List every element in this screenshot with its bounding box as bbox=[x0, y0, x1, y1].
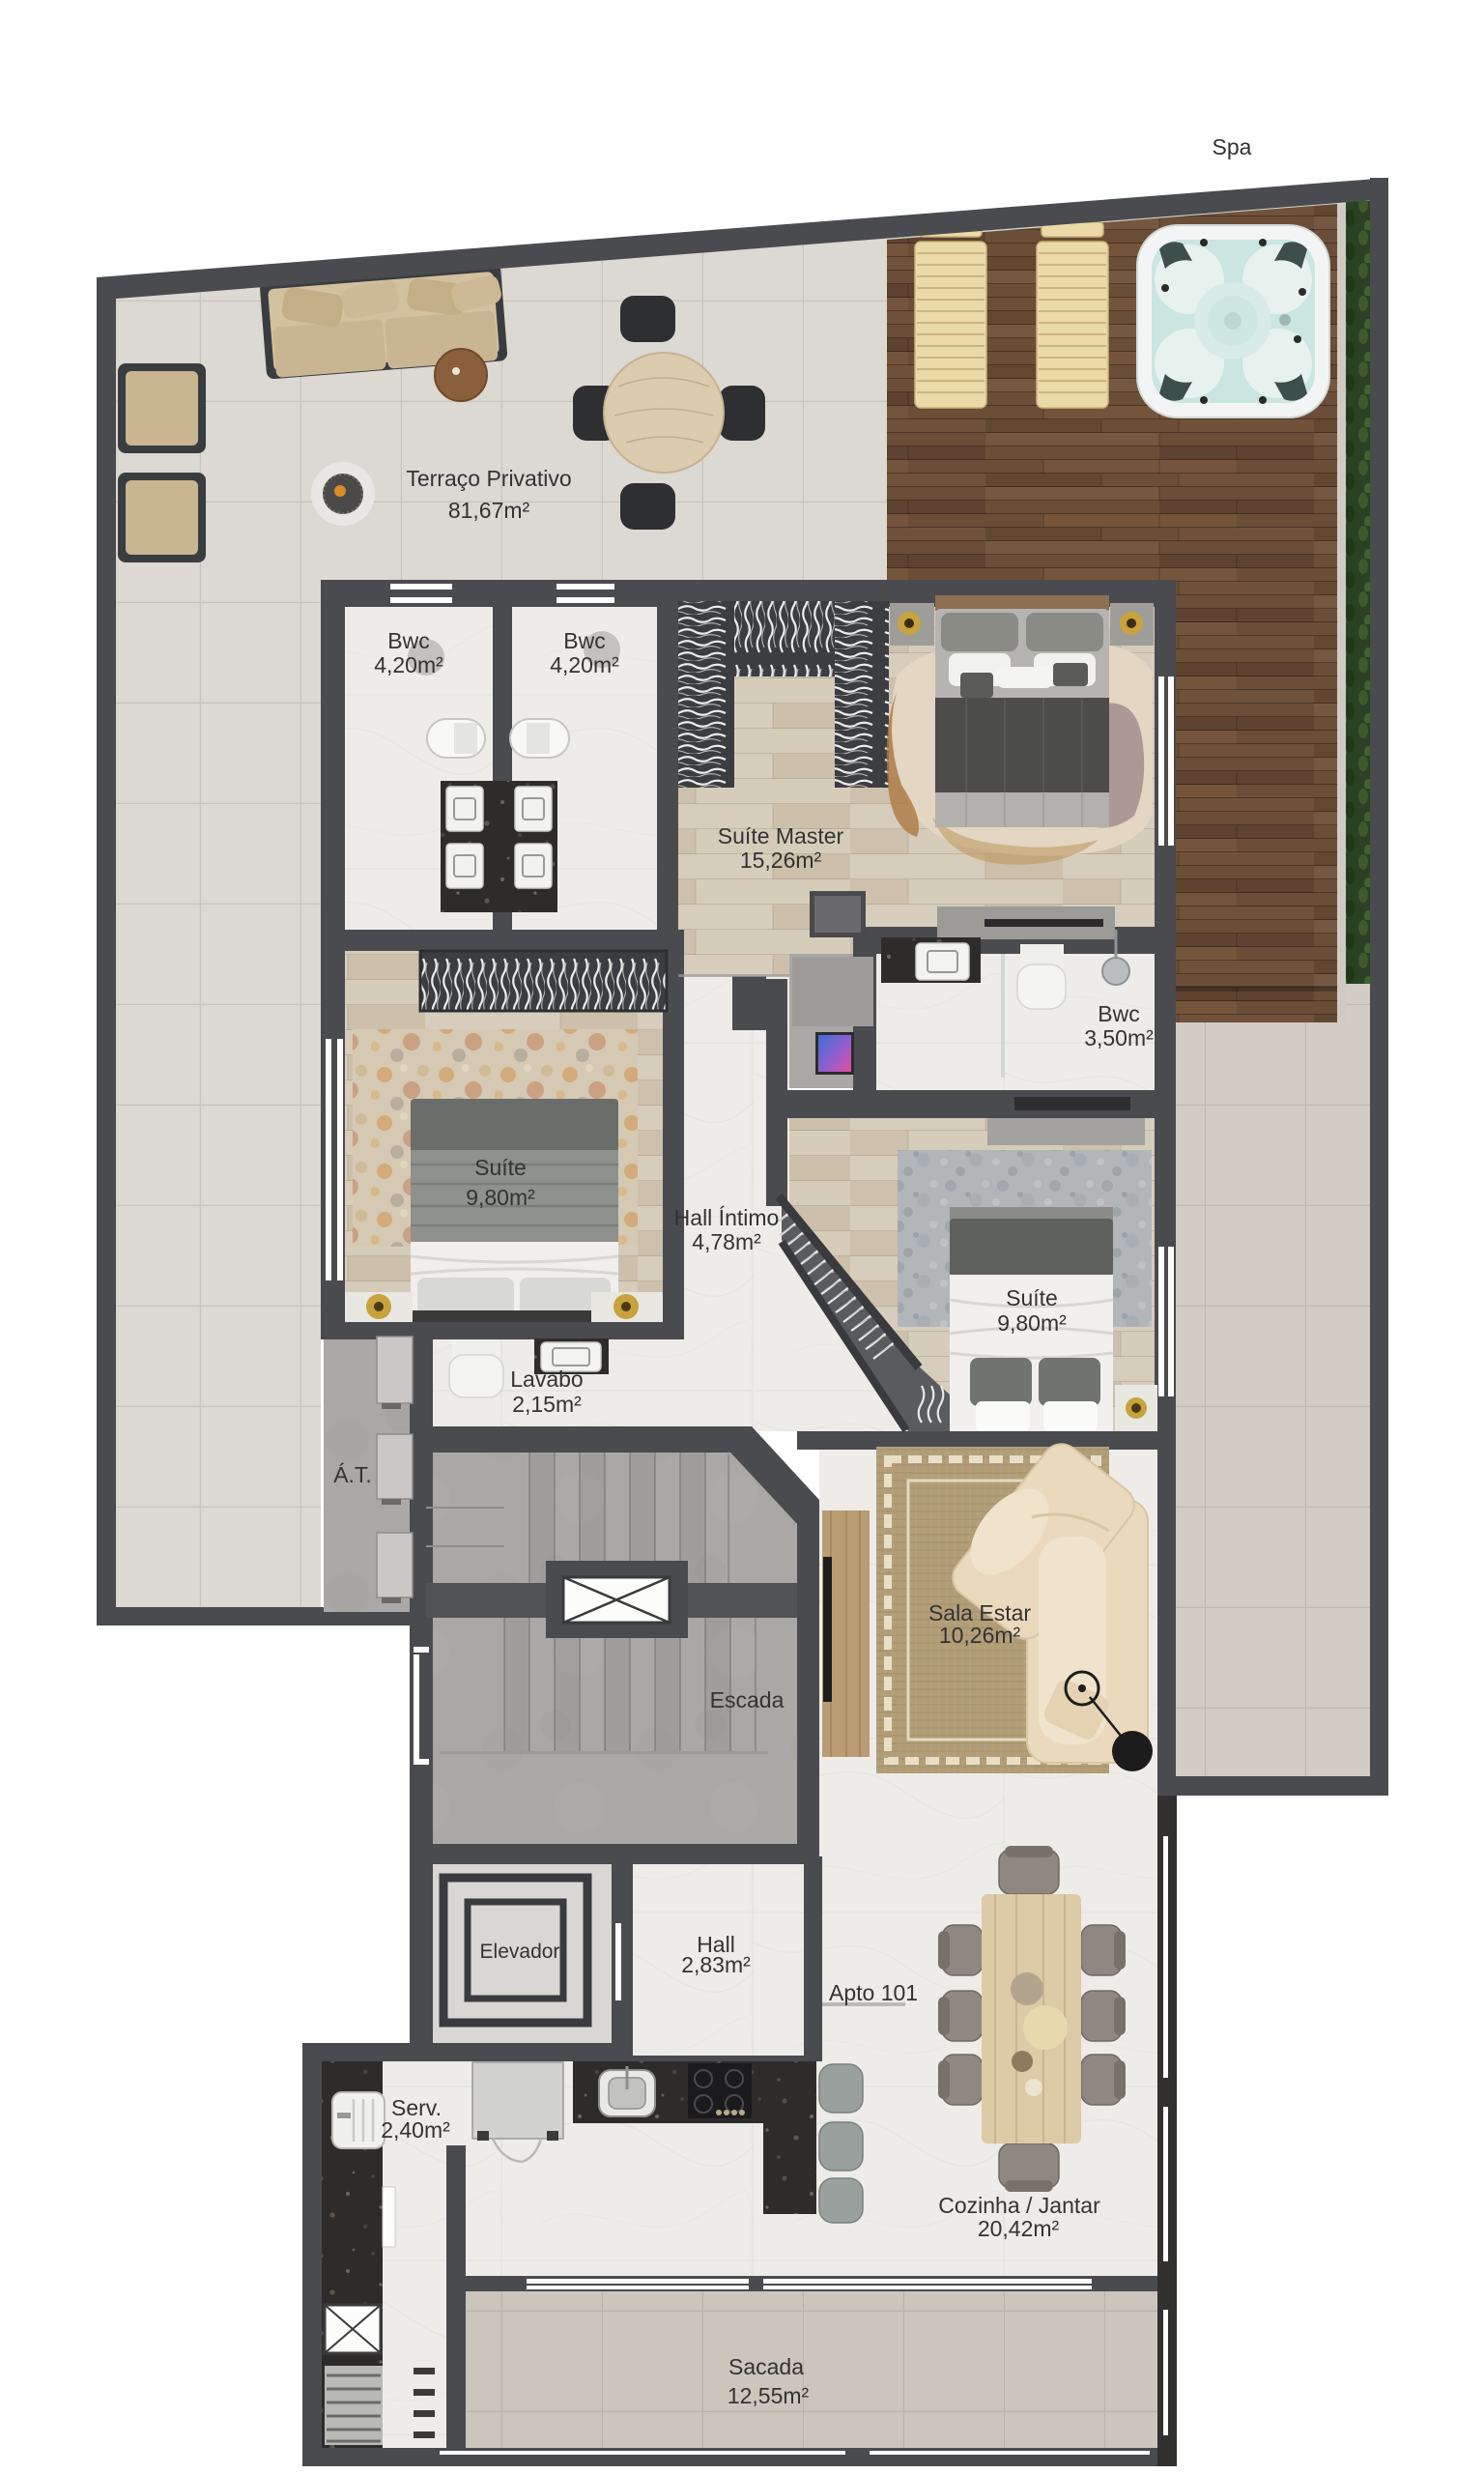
svg-text:81,67m²: 81,67m² bbox=[448, 498, 530, 523]
svg-text:Bwc: Bwc bbox=[387, 628, 429, 653]
svg-text:Cozinha / Jantar: Cozinha / Jantar bbox=[938, 2193, 1100, 2218]
svg-text:3,50m²: 3,50m² bbox=[1084, 1025, 1154, 1050]
svg-text:Sacada: Sacada bbox=[728, 2354, 804, 2379]
svg-text:9,80m²: 9,80m² bbox=[466, 1185, 535, 1210]
svg-text:4,20m²: 4,20m² bbox=[374, 652, 443, 677]
svg-text:Bwc: Bwc bbox=[563, 628, 605, 653]
svg-text:Elevador: Elevador bbox=[480, 1941, 560, 1963]
svg-text:15,26m²: 15,26m² bbox=[740, 848, 822, 873]
svg-text:4,78m²: 4,78m² bbox=[692, 1229, 761, 1254]
svg-text:Bwc: Bwc bbox=[1098, 1001, 1139, 1026]
svg-text:Escada: Escada bbox=[710, 1687, 785, 1712]
svg-text:20,42m²: 20,42m² bbox=[978, 2216, 1060, 2241]
svg-text:Apto 101: Apto 101 bbox=[829, 1980, 918, 2005]
svg-text:Á.T.: Á.T. bbox=[333, 1462, 372, 1487]
svg-text:Terraço Privativo: Terraço Privativo bbox=[406, 466, 571, 491]
svg-text:2,40m²: 2,40m² bbox=[381, 2117, 450, 2143]
svg-text:10,26m²: 10,26m² bbox=[939, 1623, 1021, 1648]
svg-text:Hall Íntimo: Hall Íntimo bbox=[674, 1205, 780, 1230]
svg-text:2,83m²: 2,83m² bbox=[681, 1952, 751, 1977]
svg-text:Suíte: Suíte bbox=[1006, 1285, 1058, 1310]
svg-text:12,55m²: 12,55m² bbox=[728, 2383, 810, 2408]
svg-text:9,80m²: 9,80m² bbox=[997, 1310, 1067, 1336]
svg-text:Suíte Master: Suíte Master bbox=[718, 823, 844, 849]
svg-text:Spa: Spa bbox=[1213, 134, 1252, 159]
svg-text:Lavabo: Lavabo bbox=[510, 1366, 583, 1392]
svg-text:4,20m²: 4,20m² bbox=[550, 652, 619, 677]
svg-text:2,15m²: 2,15m² bbox=[512, 1392, 582, 1417]
svg-text:Suíte: Suíte bbox=[474, 1155, 527, 1180]
